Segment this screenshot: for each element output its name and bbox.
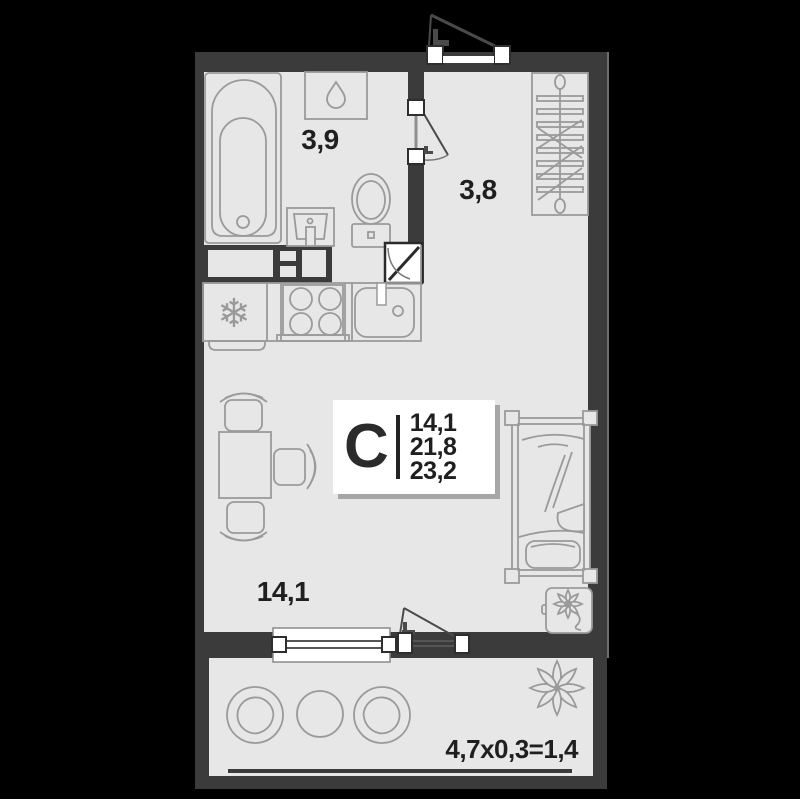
faucet [377,283,386,305]
total-area-value: 23,2 [410,459,457,483]
living-area-value: 14,1 [410,411,457,435]
vent-shafts [208,250,326,277]
balcony-wall-left [195,658,209,776]
card-areas: 14,1 21,8 23,2 [410,411,457,483]
snowflake-icon: ❄ [217,291,251,337]
room-label-bathroom: 3,9 [301,124,338,156]
bathroom-sink [287,208,334,246]
window [272,628,396,662]
apartment-type-letter: С [344,419,387,475]
area-no-balcony-value: 21,8 [410,435,457,459]
floorplan-canvas: ❄ [0,0,800,799]
wardrobe [532,73,588,215]
balcony-flower [530,661,584,715]
card-divider [396,415,400,479]
balcony-wall-right [593,658,607,776]
dining-table [219,432,271,498]
door-threshold [443,56,494,63]
balcony-wall-bottom [195,776,607,789]
entrance-door [427,15,510,64]
bed [505,411,597,583]
room-label-hall: 3,8 [459,174,496,206]
wall-top [195,52,607,72]
balcony-table [297,691,343,737]
wall-left [195,52,204,658]
room-label-living: 14,1 [257,576,310,608]
area-card: С 14,1 21,8 23,2 [333,400,495,494]
bedside-plant [542,588,592,633]
toilet [352,174,390,247]
balcony-glazing-line [228,769,572,773]
utility-door [385,243,422,283]
balcony-formula: 4,7x0,3=1,4 [445,734,578,765]
